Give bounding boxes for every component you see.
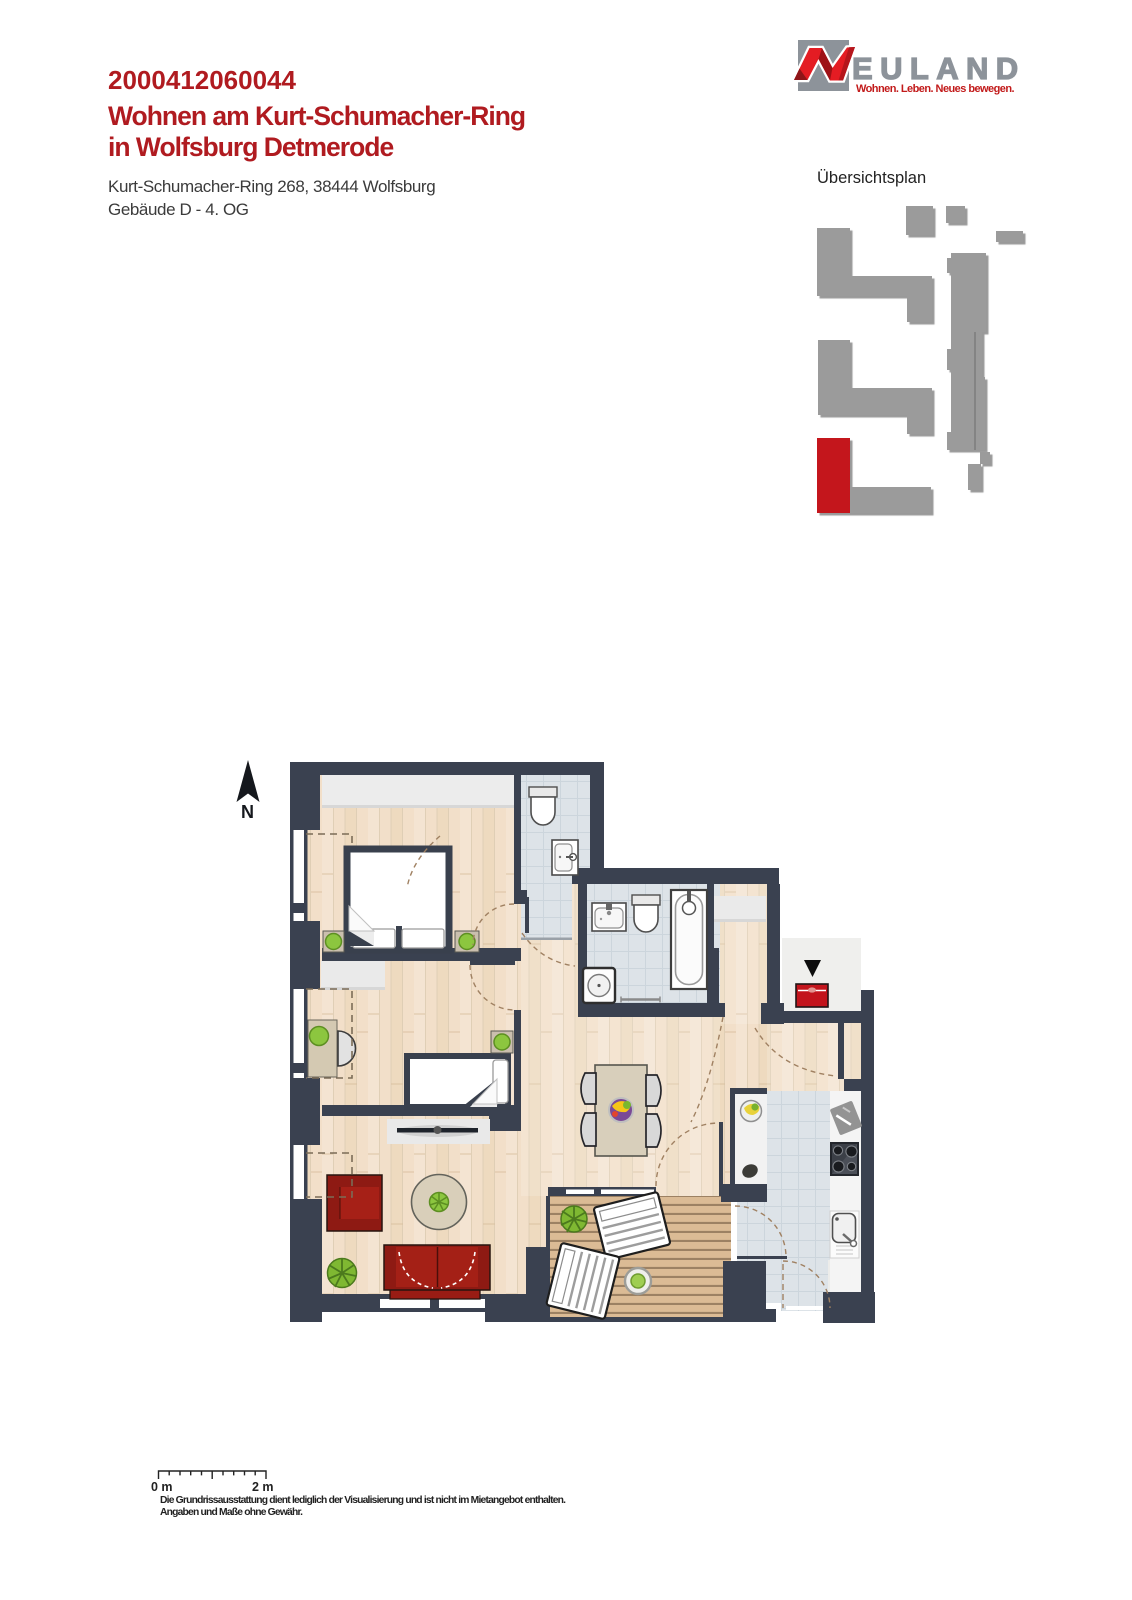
- svg-text:N: N: [241, 802, 254, 822]
- svg-text:Angaben und Maße ohne Gewähr.: Angaben und Maße ohne Gewähr.: [160, 1507, 303, 1518]
- svg-text:2 m: 2 m: [252, 1480, 274, 1494]
- svg-text:in Wolfsburg Detmerode: in Wolfsburg Detmerode: [108, 132, 393, 162]
- svg-text:Wohnen. Leben. Neues bewegen.: Wohnen. Leben. Neues bewegen.: [856, 83, 1015, 95]
- svg-text:0 m: 0 m: [151, 1480, 173, 1494]
- svg-text:Wohnen am Kurt-Schumacher-Ring: Wohnen am Kurt-Schumacher-Ring: [108, 101, 525, 131]
- svg-text:Kurt-Schumacher-Ring 268, 3844: Kurt-Schumacher-Ring 268, 38444 Wolfsbur…: [108, 177, 435, 196]
- svg-text:Die Grundrissausstattung dient: Die Grundrissausstattung dient lediglich…: [160, 1495, 566, 1506]
- svg-text:Gebäude D - 4. OG: Gebäude D - 4. OG: [108, 200, 249, 219]
- svg-text:2000412060044: 2000412060044: [108, 65, 297, 95]
- svg-text:EULAND: EULAND: [852, 51, 1026, 86]
- svg-text:Übersichtsplan: Übersichtsplan: [817, 169, 926, 187]
